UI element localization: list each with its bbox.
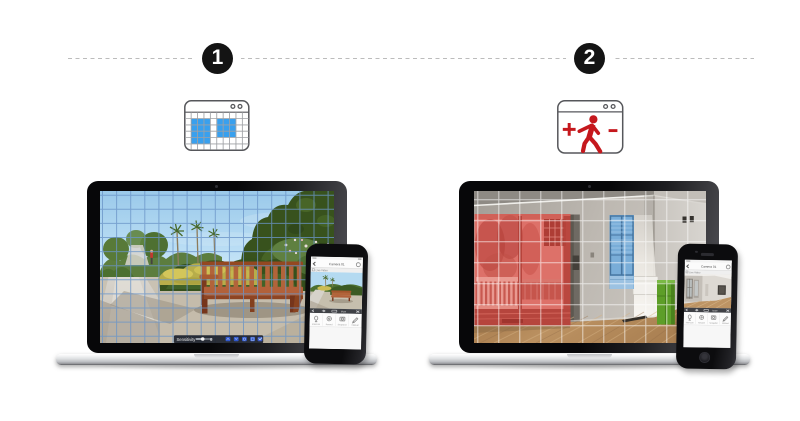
svg-text:Manual: Manual xyxy=(351,324,358,326)
svg-text:Mute: Mute xyxy=(340,310,346,313)
svg-text:Sensitivity: Sensitivity xyxy=(176,337,196,342)
svg-text:Intercom: Intercom xyxy=(686,321,694,324)
svg-text:Snapshot: Snapshot xyxy=(337,323,346,326)
svg-text:Record: Record xyxy=(698,322,704,324)
svg-text:Snapshot: Snapshot xyxy=(709,322,718,325)
svg-text:Camera 01: Camera 01 xyxy=(328,262,344,266)
svg-text:Live Video: Live Video xyxy=(315,268,328,272)
svg-text:Live Video: Live Video xyxy=(689,271,701,274)
svg-text:Intercom: Intercom xyxy=(311,322,319,325)
svg-text:Camera 01: Camera 01 xyxy=(701,265,717,269)
svg-text:Record: Record xyxy=(325,323,333,326)
svg-text:Manual: Manual xyxy=(722,323,729,325)
